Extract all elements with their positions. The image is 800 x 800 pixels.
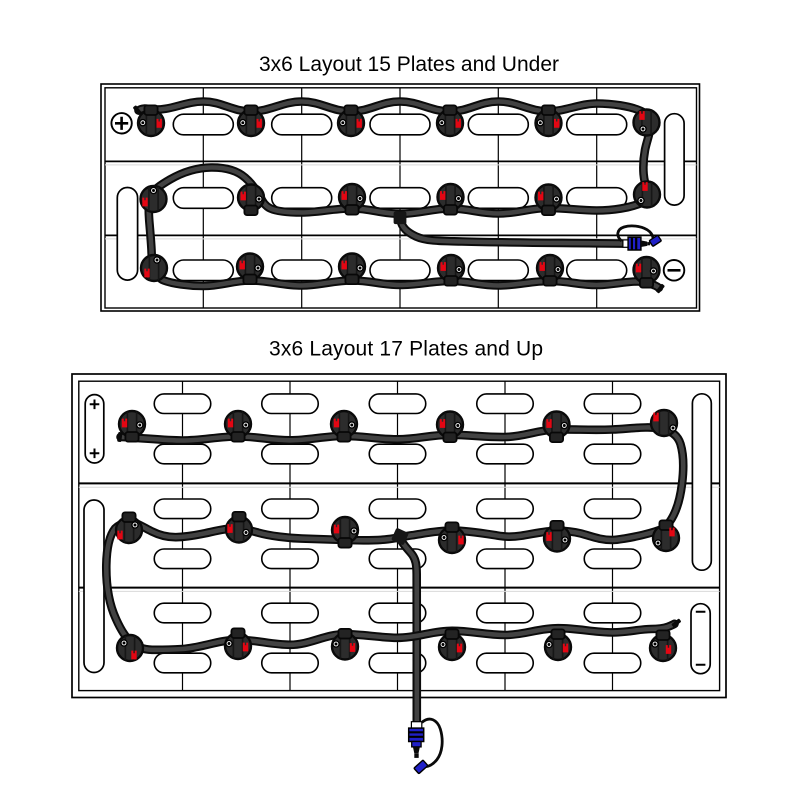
svg-text:3x6 Layout 17 Plates and Up: 3x6 Layout 17 Plates and Up — [269, 338, 543, 361]
svg-text:3x6 Layout 15 Plates and Under: 3x6 Layout 15 Plates and Under — [259, 53, 559, 76]
